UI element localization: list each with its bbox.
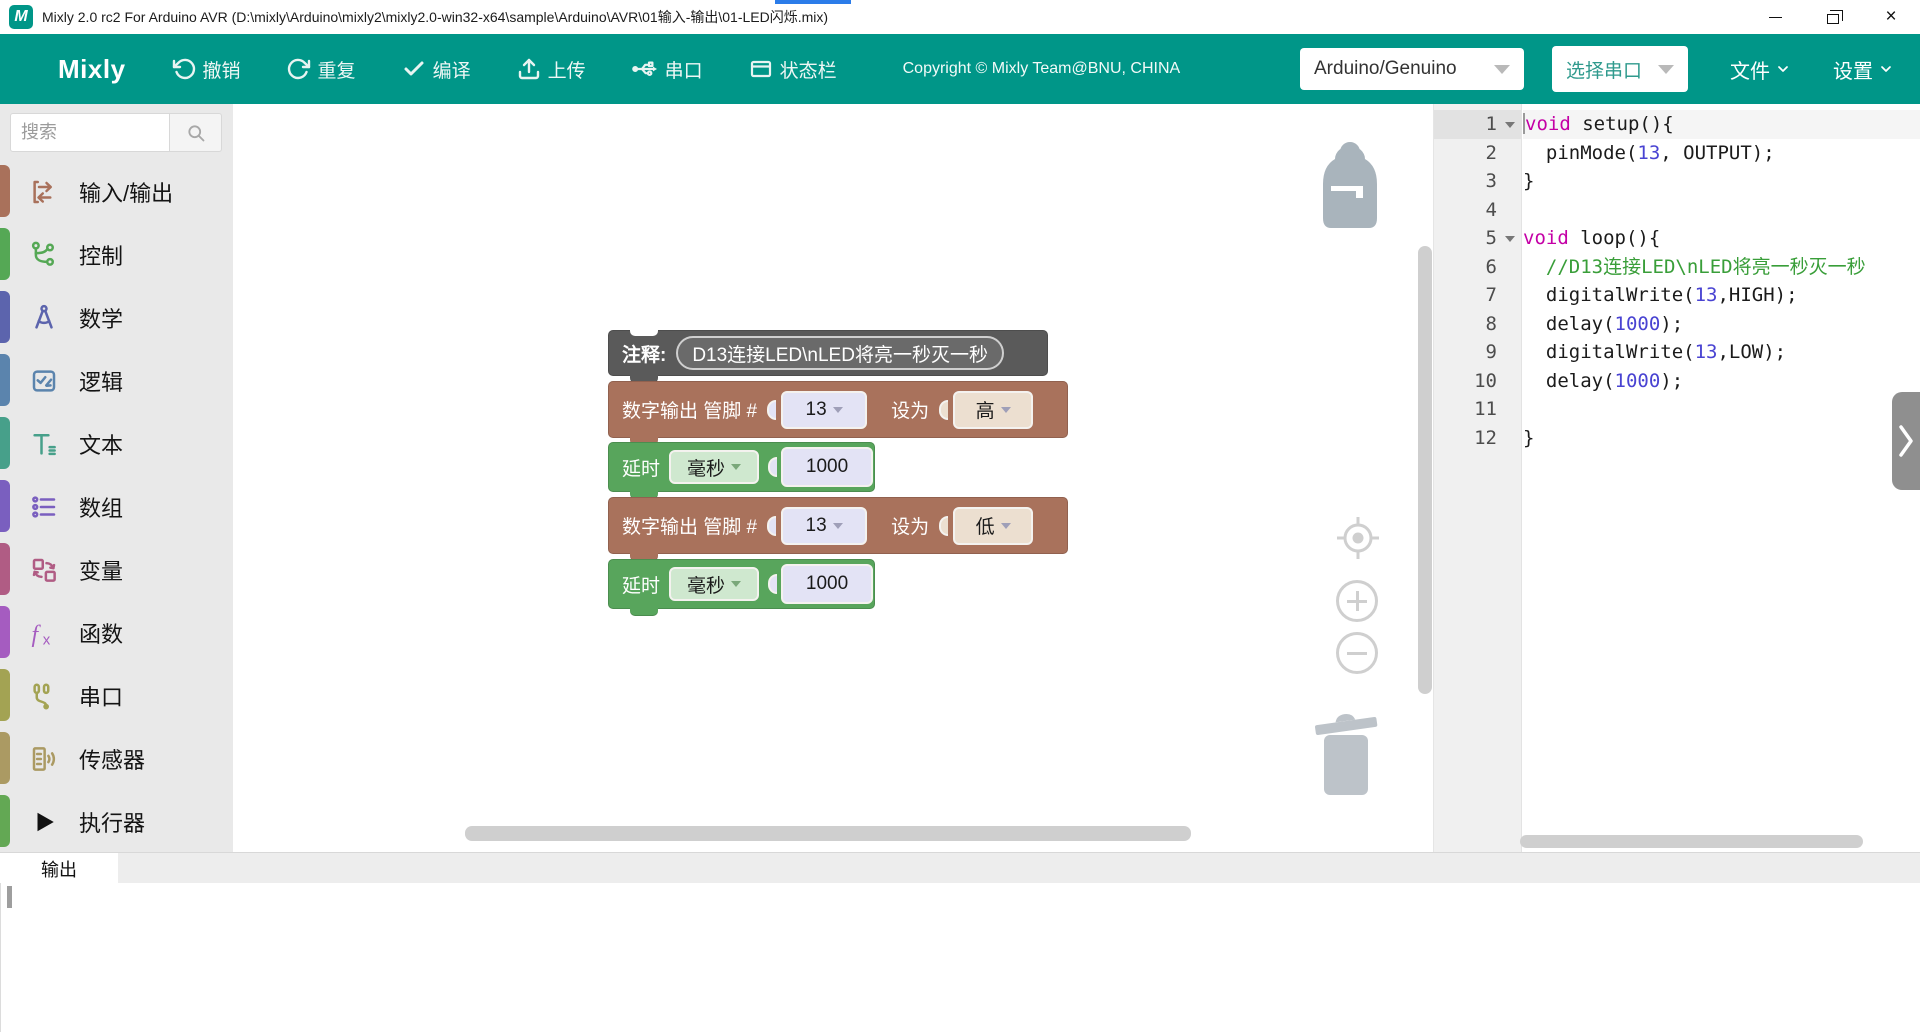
search-icon xyxy=(186,123,206,143)
pin-dropdown[interactable]: 13 xyxy=(781,391,867,429)
fold-icon[interactable] xyxy=(1505,122,1515,128)
gutter-line: 7 xyxy=(1434,281,1521,310)
state-dropdown[interactable]: 低 xyxy=(953,507,1033,545)
block-workspace[interactable]: 注释: D13连接LED\nLED将亮一秒灭一秒 数字输出 管脚 # 13 设为… xyxy=(233,104,1433,852)
tab-output[interactable]: 输出 xyxy=(0,853,118,884)
serial-plug-icon xyxy=(27,679,61,713)
undo-button[interactable]: 撤销 xyxy=(172,56,241,83)
statusbar-icon xyxy=(749,57,773,81)
state-dropdown[interactable]: 高 xyxy=(953,391,1033,429)
chevron-down-icon xyxy=(1001,407,1011,413)
mixly-window: M Mixly 2.0 rc2 For Arduino AVR (D:\mixl… xyxy=(0,0,1920,1032)
chevron-down-icon xyxy=(1878,61,1894,77)
fold-icon[interactable] xyxy=(1505,236,1515,242)
code-line xyxy=(1523,196,1920,225)
delay-unit-dropdown[interactable]: 毫秒 xyxy=(669,567,759,601)
code-line: void setup(){ xyxy=(1523,110,1920,139)
sidebar-item-text[interactable]: 文本 xyxy=(0,412,233,475)
code-lines: void setup(){ pinMode(13, OUTPUT);}void … xyxy=(1523,104,1920,852)
compile-icon xyxy=(402,57,426,81)
math-icon xyxy=(27,301,61,335)
redo-icon xyxy=(287,57,311,81)
gutter-line: 6 xyxy=(1434,253,1521,282)
gutter-line: 4 xyxy=(1434,196,1521,225)
sidebar-item-logic[interactable]: 逻辑 xyxy=(0,349,233,412)
gutter-line: 10 xyxy=(1434,367,1521,396)
sidebar-item-control[interactable]: 控制 xyxy=(0,223,233,286)
window-controls: × xyxy=(1746,0,1920,34)
code-panel: 123456789101112 void setup(){ pinMode(13… xyxy=(1433,104,1920,852)
statusbar-button[interactable]: 状态栏 xyxy=(749,56,837,83)
delay-value-field[interactable]: 1000 xyxy=(781,447,873,487)
chevron-down-icon xyxy=(1001,523,1011,529)
code-line: } xyxy=(1523,424,1920,453)
io-icon xyxy=(27,175,61,209)
comment-text-field[interactable]: D13连接LED\nLED将亮一秒灭一秒 xyxy=(676,336,1004,370)
gutter-line: 3 xyxy=(1434,167,1521,196)
block-delay-1[interactable]: 延时 毫秒 1000 xyxy=(608,442,875,492)
gutter-line: 2 xyxy=(1434,139,1521,168)
brand-mixly: Mixly xyxy=(58,54,126,85)
delay-unit-dropdown[interactable]: 毫秒 xyxy=(669,450,759,484)
search-button[interactable] xyxy=(170,113,222,152)
gutter-line: 5 xyxy=(1434,224,1521,253)
sidebar-item-sensor[interactable]: 传感器 xyxy=(0,727,233,790)
compile-button[interactable]: 编译 xyxy=(402,56,471,83)
code-gutter: 123456789101112 xyxy=(1434,104,1522,852)
block-digital-write-2[interactable]: 数字输出 管脚 # 13 设为 低 xyxy=(608,497,1068,554)
sensor-icon xyxy=(27,742,61,776)
chevron-down-icon xyxy=(731,464,741,470)
window-title: Mixly 2.0 rc2 For Arduino AVR (D:\mixly\… xyxy=(42,7,828,27)
zoom-in-button[interactable] xyxy=(1336,580,1378,622)
sidebar-item-variable[interactable]: 变量 xyxy=(0,538,233,601)
block-comment[interactable]: 注释: D13连接LED\nLED将亮一秒灭一秒 xyxy=(608,330,1048,376)
block-category-sidebar: 输入/输出 控制 数学 xyxy=(0,104,233,852)
accent-bar xyxy=(775,0,851,4)
variable-icon xyxy=(27,553,61,587)
svg-text:f: f xyxy=(32,621,42,647)
titlebar: M Mixly 2.0 rc2 For Arduino AVR (D:\mixl… xyxy=(0,0,1920,34)
code-line: pinMode(13, OUTPUT); xyxy=(1523,139,1920,168)
gutter-line: 11 xyxy=(1434,395,1521,424)
minimize-icon xyxy=(1769,17,1782,18)
gutter-line: 8 xyxy=(1434,310,1521,339)
main-toolbar: Mixly 撤销 重复 编译 上传 串口 xyxy=(0,34,1920,104)
menu-file[interactable]: 文件 xyxy=(1730,55,1791,84)
serial-icon xyxy=(632,57,658,81)
text-icon xyxy=(27,427,61,461)
chevron-right-icon xyxy=(1895,421,1917,461)
output-content xyxy=(0,883,1920,1032)
array-icon xyxy=(27,490,61,524)
chevron-down-icon xyxy=(731,581,741,587)
code-line: delay(1000); xyxy=(1523,310,1920,339)
delay-value-field[interactable]: 1000 xyxy=(781,564,873,604)
canvas-vertical-scrollbar[interactable] xyxy=(1418,246,1432,694)
svg-text:x: x xyxy=(43,631,51,648)
sidebar-item-serial[interactable]: 串口 xyxy=(0,664,233,727)
output-tabstrip: 输出 xyxy=(0,852,1920,883)
code-line: digitalWrite(13,LOW); xyxy=(1523,338,1920,367)
code-line: digitalWrite(13,HIGH); xyxy=(1523,281,1920,310)
gutter-line: 9 xyxy=(1434,338,1521,367)
pin-dropdown[interactable]: 13 xyxy=(781,507,867,545)
collapse-panel-button[interactable] xyxy=(1892,392,1920,490)
trash-icon[interactable] xyxy=(1311,709,1381,804)
chevron-down-icon xyxy=(1658,65,1674,74)
code-line: } xyxy=(1523,167,1920,196)
zoom-reset-button[interactable] xyxy=(1335,515,1381,566)
block-delay-2[interactable]: 延时 毫秒 1000 xyxy=(608,559,875,609)
sidebar-item-array[interactable]: 数组 xyxy=(0,475,233,538)
chevron-down-icon xyxy=(833,407,843,413)
upload-icon xyxy=(517,57,541,81)
code-line: void loop(){ xyxy=(1523,224,1920,253)
sidebar-item-function[interactable]: f x 函数 xyxy=(0,601,233,664)
sidebar-item-io[interactable]: 输入/输出 xyxy=(0,160,233,223)
code-line: //D13连接LED\nLED将亮一秒灭一秒 xyxy=(1523,253,1920,282)
close-icon: × xyxy=(1885,6,1896,28)
output-scroll-thumb[interactable] xyxy=(7,886,12,908)
code-line: delay(1000); xyxy=(1523,367,1920,396)
backpack-icon[interactable] xyxy=(1317,138,1383,241)
menu-settings[interactable]: 设置 xyxy=(1833,55,1894,84)
sidebar-item-math[interactable]: 数学 xyxy=(0,286,233,349)
redo-button[interactable]: 重复 xyxy=(287,56,356,83)
control-icon xyxy=(27,238,61,272)
logic-icon xyxy=(27,364,61,398)
upload-button[interactable]: 上传 xyxy=(517,56,586,83)
output-panel: 输出 xyxy=(0,852,1920,1032)
restore-icon xyxy=(1827,14,1839,24)
chevron-down-icon xyxy=(833,523,843,529)
block-digital-write-1[interactable]: 数字输出 管脚 # 13 设为 高 xyxy=(608,381,1068,438)
zoom-out-button[interactable] xyxy=(1336,632,1378,674)
copyright-text: Copyright © Mixly Team@BNU, CHINA xyxy=(903,60,1181,78)
gutter-line: 1 xyxy=(1434,110,1521,139)
category-list: 输入/输出 控制 数学 xyxy=(0,160,233,852)
code-horizontal-scrollbar[interactable] xyxy=(1520,835,1863,848)
chevron-down-icon xyxy=(1494,65,1510,74)
canvas-horizontal-scrollbar[interactable] xyxy=(465,826,1191,841)
close-button[interactable]: × xyxy=(1862,0,1920,34)
undo-icon xyxy=(172,57,196,81)
serial-monitor-button[interactable]: 串口 xyxy=(632,56,703,83)
sidebar-item-actuator[interactable]: 执行器 xyxy=(0,790,233,852)
actuator-icon xyxy=(27,805,61,839)
search-input[interactable] xyxy=(10,113,170,152)
restore-button[interactable] xyxy=(1804,0,1862,34)
board-select[interactable]: Arduino/Genuino xyxy=(1300,48,1524,90)
port-select[interactable]: 选择串口 xyxy=(1552,46,1688,92)
code-line xyxy=(1523,395,1920,424)
minimize-button[interactable] xyxy=(1746,0,1804,34)
gutter-line: 12 xyxy=(1434,424,1521,453)
function-icon: f x xyxy=(27,616,61,650)
chevron-down-icon xyxy=(1775,61,1791,77)
mixly-logo-icon: M xyxy=(9,5,33,29)
